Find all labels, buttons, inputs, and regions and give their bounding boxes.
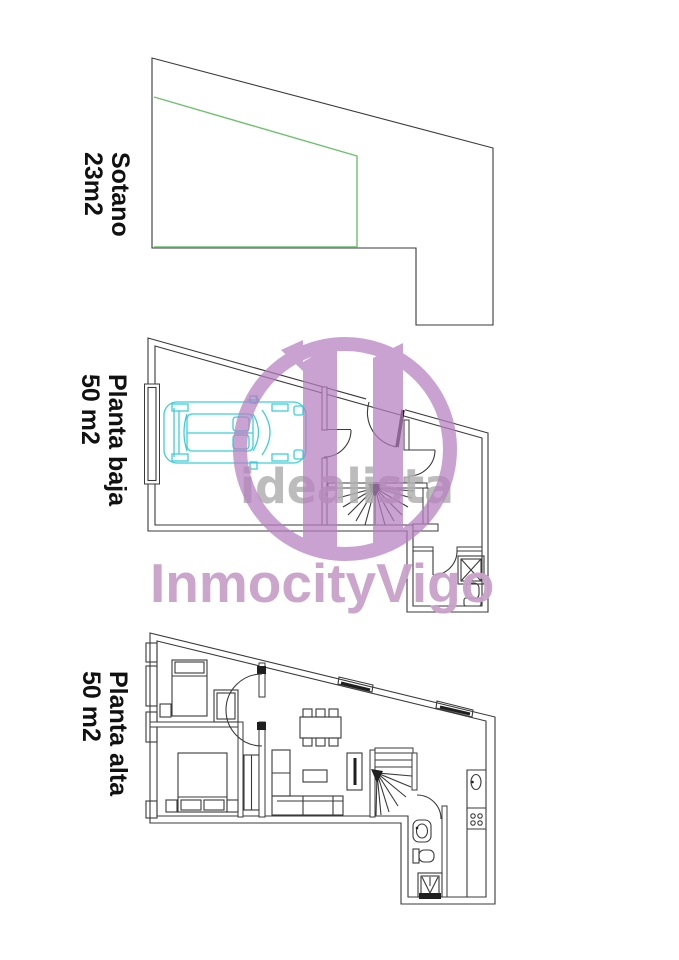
- window-icon: [436, 701, 473, 717]
- sink-icon: [413, 820, 431, 842]
- nightstand: [160, 704, 171, 717]
- kitchen-counter: [467, 770, 486, 897]
- floor-label-line: Planta alta: [105, 671, 132, 796]
- coffee-table: [303, 770, 327, 782]
- floor-label-sotano: Sotano 23m2: [80, 152, 133, 237]
- floor-label-line: Sotano: [107, 152, 134, 237]
- pa-bathroom: [413, 795, 447, 899]
- dining-table: [300, 709, 341, 746]
- planta-alta-plan: [146, 633, 495, 904]
- garage-door: [145, 384, 160, 484]
- floor-label-planta-alta: Planta alta 50 m2: [78, 671, 131, 796]
- bed: [172, 660, 207, 716]
- nightstand: [227, 800, 238, 812]
- sotano-terrain-line: [154, 97, 357, 247]
- shower-icon: [418, 873, 442, 899]
- pa-inner-wall: [157, 641, 486, 897]
- kitchen-sink-icon: [471, 775, 481, 790]
- agency-watermark-text: InmocityVigo: [150, 551, 494, 615]
- toilet-icon: [413, 849, 434, 863]
- wardrobe: [244, 755, 259, 810]
- pa-stairs: [370, 748, 417, 817]
- floorplan-page: idealista InmocityVigo Sotano 23m2 Plant…: [0, 0, 679, 960]
- bed: [178, 753, 227, 812]
- floor-area-line: 50 m2: [77, 374, 104, 506]
- tv-unit: [347, 753, 362, 790]
- floor-area-line: 50 m2: [78, 671, 105, 796]
- floor-area-line: 23m2: [80, 152, 107, 237]
- sotano-plan: [152, 58, 493, 325]
- hob-icon: [471, 814, 482, 825]
- front-door: [366, 399, 405, 447]
- pa-wall-hall-right: [259, 663, 265, 817]
- floor-label-line: Planta baja: [104, 374, 131, 506]
- nightstand: [166, 800, 177, 812]
- pb-door-garage: [324, 430, 351, 458]
- pa-wall-hall-left: [238, 722, 243, 817]
- idealista-watermark-text: idealista: [240, 459, 454, 515]
- left-wall-windows: [146, 643, 157, 818]
- floor-label-planta-baja: Planta baja 50 m2: [77, 374, 130, 506]
- sotano-outline: [152, 58, 493, 325]
